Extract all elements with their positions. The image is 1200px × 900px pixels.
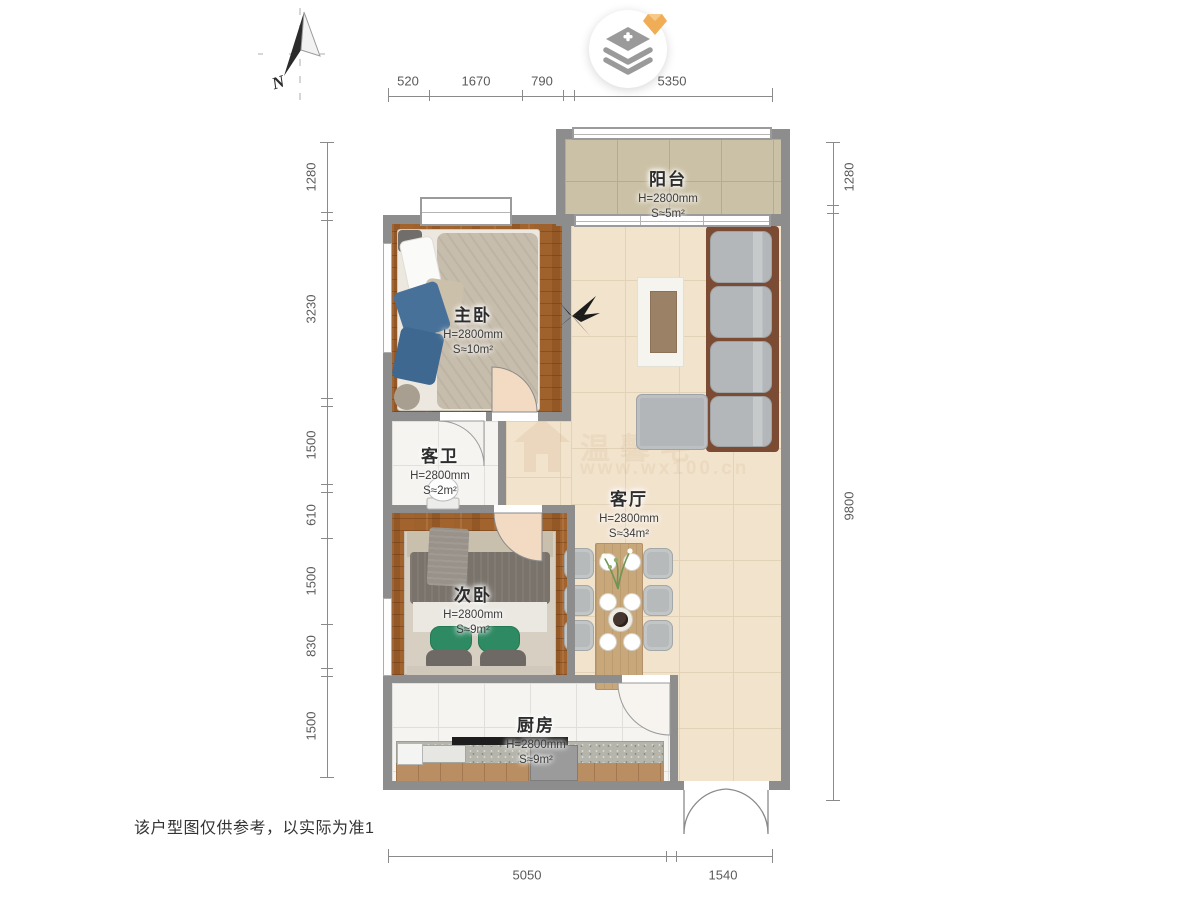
room-label-balcony: 阳台 H=2800mm S≈5m² [638, 169, 698, 223]
master-bedroom-door[interactable] [492, 367, 537, 412]
wall-plant-icon [559, 296, 600, 337]
room-label-second-bedroom: 次卧 H=2800mm S≈9m² [443, 585, 503, 639]
disclaimer-text: 该户型图仅供参考，以实际为准1 [134, 814, 374, 838]
room-label-bathroom: 客卫 H=2800mm S≈2m² [410, 446, 470, 500]
entrance-door-left[interactable] [684, 789, 726, 834]
room-label-master-bedroom: 主卧 H=2800mm S≈10m² [443, 305, 503, 359]
floorplan-canvas: N 520 1670 790 5350 1280 [0, 0, 1200, 900]
room-label-kitchen: 厨房 H=2800mm S≈9m² [506, 715, 566, 769]
doors-overlay [0, 0, 1200, 900]
room-label-living-room: 客厅 H=2800mm S≈34m² [599, 489, 659, 543]
kitchen-door[interactable] [618, 683, 670, 735]
entrance-door-right[interactable] [726, 789, 768, 834]
second-bedroom-door[interactable] [494, 513, 542, 561]
